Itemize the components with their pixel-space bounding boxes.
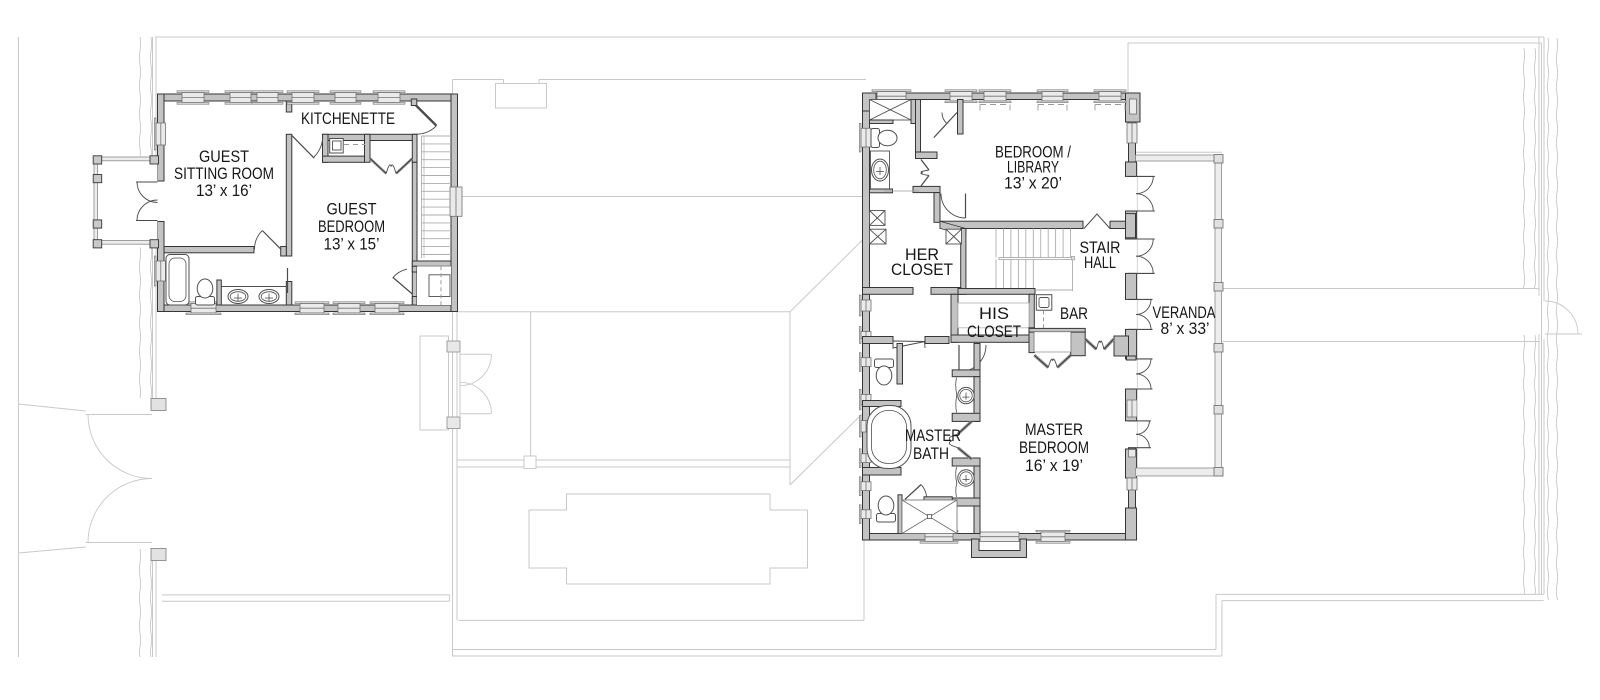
svg-text:BEDROOM: BEDROOM	[1019, 439, 1089, 457]
svg-text:HIS: HIS	[979, 305, 1009, 323]
svg-text:HALL: HALL	[1084, 254, 1116, 272]
svg-text:GUEST: GUEST	[199, 148, 249, 166]
svg-text:BATH: BATH	[913, 445, 949, 463]
svg-text:13’ x 15’: 13’ x 15’	[324, 236, 380, 254]
svg-text:13’ x 16’: 13’ x 16’	[196, 182, 252, 200]
svg-text:GUEST: GUEST	[327, 200, 377, 218]
svg-text:13’ x 20’: 13’ x 20’	[1004, 174, 1062, 192]
svg-text:MASTER: MASTER	[1025, 421, 1083, 439]
svg-text:CLOSET: CLOSET	[891, 261, 953, 279]
svg-text:SITTING ROOM: SITTING ROOM	[174, 165, 274, 183]
svg-text:16’ x 19’: 16’ x 19’	[1025, 457, 1083, 475]
svg-text:8’ x 33’: 8’ x 33’	[1161, 320, 1210, 338]
svg-text:BAR: BAR	[1060, 305, 1088, 323]
svg-text:MASTER: MASTER	[905, 427, 961, 445]
svg-text:CLOSET: CLOSET	[967, 323, 1021, 341]
svg-text:KITCHENETTE: KITCHENETTE	[301, 110, 395, 128]
svg-text:BEDROOM: BEDROOM	[318, 218, 385, 236]
